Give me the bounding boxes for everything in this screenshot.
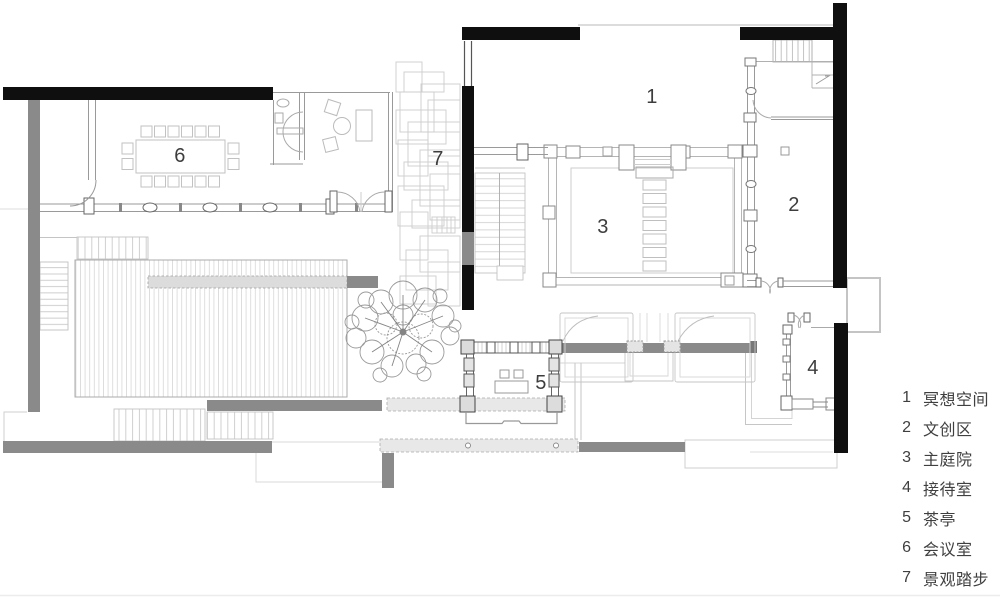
courtyard [543,145,743,287]
legend-item: 4 接待室 [898,473,989,503]
legend-item-label: 文创区 [923,416,973,440]
legend-item: 5 茶亭 [898,503,989,533]
room-label-creative: 2 [788,195,800,215]
meditation-room-windows [474,144,548,160]
legend-item-label: 主庭院 [923,446,973,470]
legend-item-number: 2 [898,419,911,437]
legend-item-label: 会议室 [923,536,973,560]
room-label-meeting: 6 [174,146,186,166]
creative-area [743,58,833,294]
legend-item: 7 景观踏步 [898,563,989,593]
legend-item: 1 冥想空间 [898,383,989,413]
legend-item: 2 文创区 [898,413,989,443]
meeting-room [40,100,392,214]
room-label-courtyard: 3 [597,217,609,237]
legend-item-number: 3 [898,449,911,467]
legend-item-number: 7 [898,569,911,587]
window-wall-segment [465,41,472,86]
legend-item-number: 5 [898,509,911,527]
floor-plan-drawing [0,0,1000,598]
legend-item: 6 会议室 [898,533,989,563]
legend-item-label: 接待室 [923,476,973,500]
central-stair [475,168,525,280]
lounge-furniture [323,99,372,152]
interior-rooms [270,92,393,212]
legend-item-label: 景观踏步 [923,566,989,590]
landscape-steps [396,62,460,306]
legend-item-label: 冥想空间 [923,386,989,410]
tree [345,281,461,382]
legend-item-number: 1 [898,389,911,407]
legend: 1 冥想空间 2 文创区 3 主庭院 4 接待室 5 茶亭 6 会议室 7 景观… [898,383,989,593]
top-right-stair [773,40,833,88]
legend-item-label: 茶亭 [923,506,956,530]
room-label-teahouse: 5 [535,373,547,393]
floor-plan-page: 1 2 3 4 5 6 7 1 冥想空间 2 文创区 3 主庭院 4 接待室 5… [0,0,1000,598]
room-label-meditation: 1 [646,87,658,107]
legend-item-number: 4 [898,479,911,497]
legend-item: 3 主庭院 [898,443,989,473]
room-label-steps: 7 [432,149,444,169]
stepping-stones [643,180,666,271]
legend-item-number: 6 [898,539,911,557]
room-label-reception: 4 [807,358,819,378]
